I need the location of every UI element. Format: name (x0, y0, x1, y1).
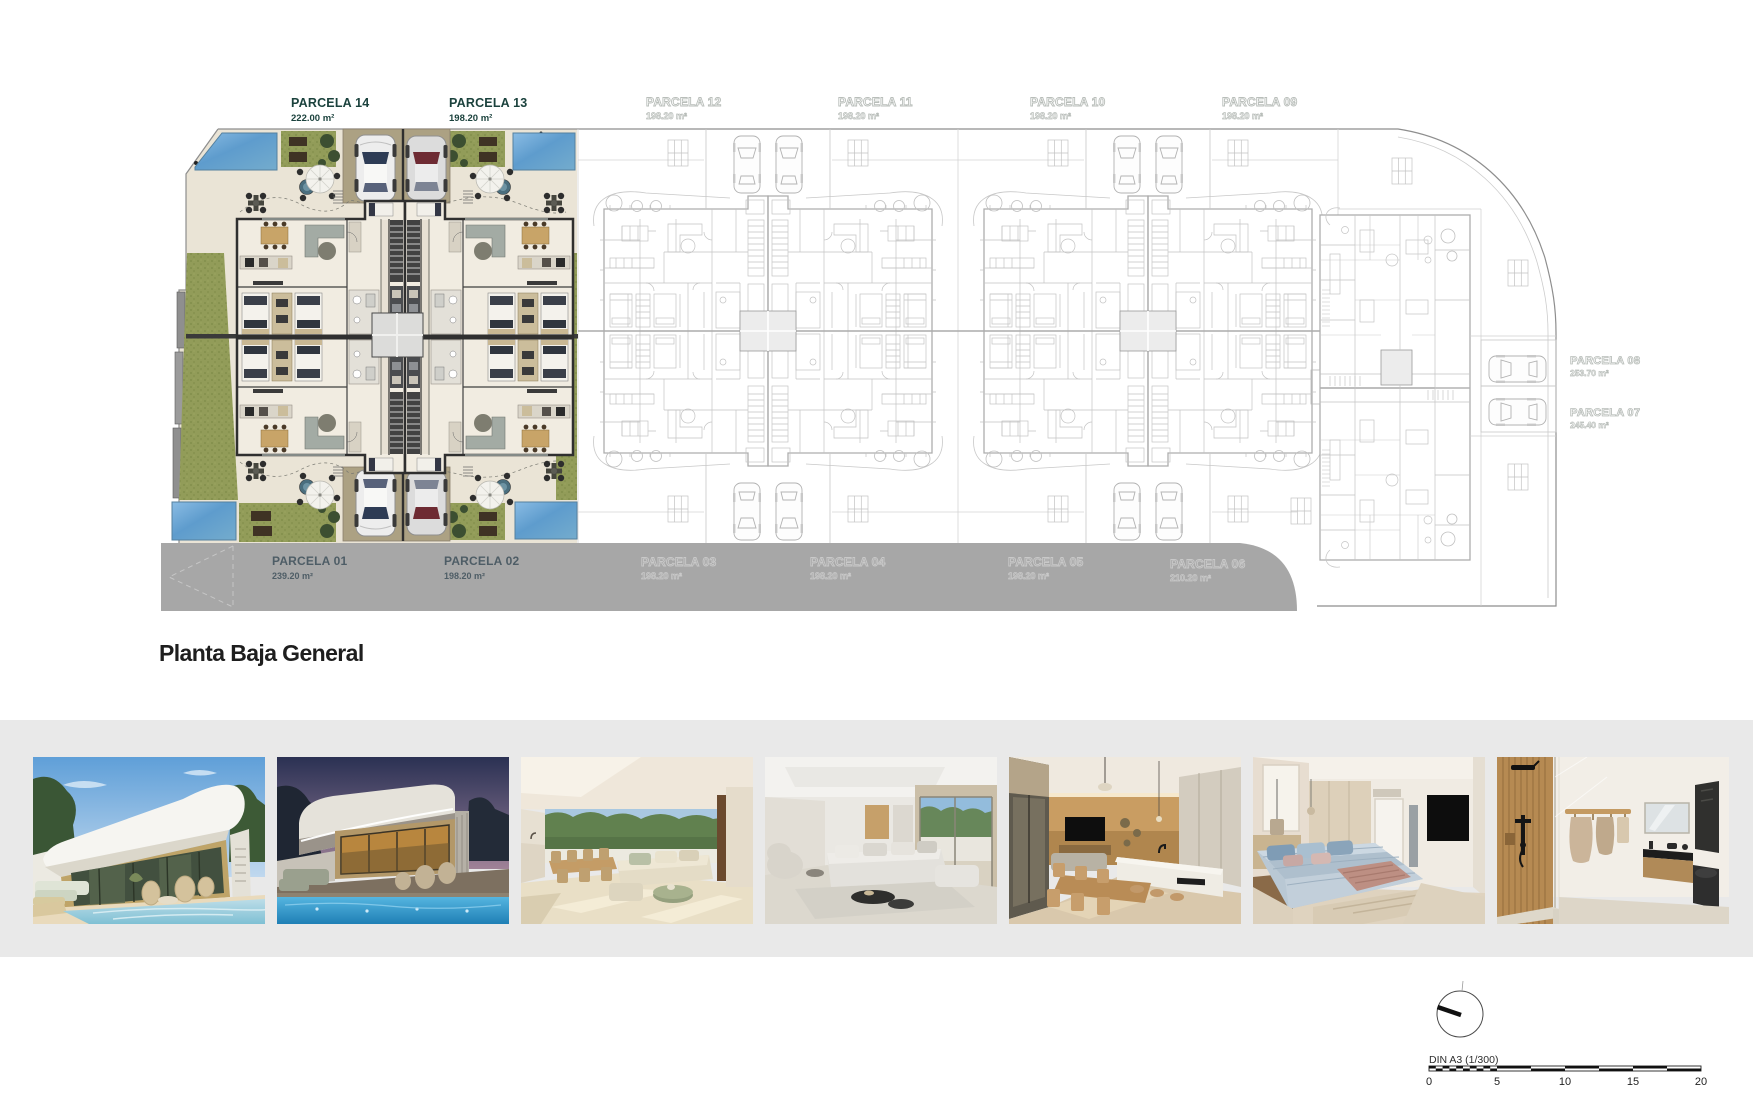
svg-text:20: 20 (1695, 1076, 1707, 1088)
svg-text:198.20 m²: 198.20 m² (810, 571, 851, 581)
svg-text:PARCELA 02: PARCELA 02 (444, 554, 519, 568)
svg-text:PARCELA 10: PARCELA 10 (1030, 95, 1105, 109)
svg-text:Planta Baja General: Planta Baja General (159, 640, 364, 666)
svg-text:PARCELA 01: PARCELA 01 (272, 554, 347, 568)
svg-text:PARCELA 14: PARCELA 14 (291, 96, 369, 110)
svg-text:15: 15 (1627, 1076, 1639, 1088)
svg-text:198.20 m²: 198.20 m² (646, 111, 687, 121)
svg-text:198.20 m²: 198.20 m² (1222, 111, 1263, 121)
svg-text:222.00 m²: 222.00 m² (291, 113, 334, 124)
svg-text:PARCELA 13: PARCELA 13 (449, 96, 527, 110)
svg-text:5: 5 (1494, 1076, 1500, 1088)
svg-text:PARCELA 07: PARCELA 07 (1570, 407, 1640, 419)
svg-text:PARCELA 12: PARCELA 12 (646, 95, 721, 109)
svg-text:253.70 m²: 253.70 m² (1570, 368, 1609, 378)
svg-text:0: 0 (1426, 1076, 1432, 1088)
svg-text:PARCELA 06: PARCELA 06 (1170, 557, 1245, 571)
svg-text:PARCELA 09: PARCELA 09 (1222, 95, 1297, 109)
svg-text:198.20 m²: 198.20 m² (449, 113, 492, 124)
svg-text:210.20 m²: 210.20 m² (1170, 573, 1211, 583)
svg-text:198.20 m²: 198.20 m² (1030, 111, 1071, 121)
svg-text:PARCELA 08: PARCELA 08 (1570, 355, 1640, 367)
svg-text:PARCELA 03: PARCELA 03 (641, 555, 716, 569)
svg-text:10: 10 (1559, 1076, 1571, 1088)
svg-text:239.20 m²: 239.20 m² (272, 571, 313, 581)
svg-text:DIN A3 (1/300): DIN A3 (1/300) (1429, 1054, 1498, 1066)
svg-text:198.20 m²: 198.20 m² (444, 571, 485, 581)
svg-text:PARCELA 11: PARCELA 11 (838, 95, 913, 109)
svg-text:198.20 m²: 198.20 m² (1008, 571, 1049, 581)
svg-text:PARCELA 05: PARCELA 05 (1008, 555, 1083, 569)
svg-text:198.20 m²: 198.20 m² (641, 571, 682, 581)
svg-text:245.40 m²: 245.40 m² (1570, 420, 1609, 430)
svg-text:PARCELA 04: PARCELA 04 (810, 555, 885, 569)
svg-text:198.20 m²: 198.20 m² (838, 111, 879, 121)
